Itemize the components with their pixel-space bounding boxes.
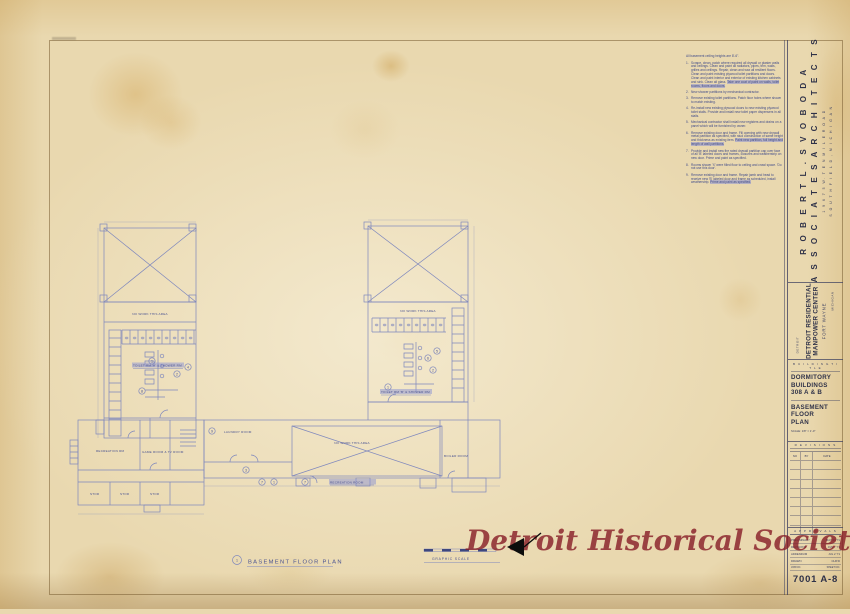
building-a (96, 224, 196, 438)
note-item: 7. Provide and install new fire rated dr… (686, 150, 783, 162)
building-title-line2: BUILDINGS (791, 382, 840, 390)
room-label-stor-1: STOR (90, 492, 100, 496)
scanned-drawing-sheet: { "colors": { "paper": "#e9d8af", "line_… (0, 0, 850, 609)
note-ref: 1 (387, 385, 389, 389)
note-ref: 3 (245, 468, 247, 472)
note-ref: 1 (151, 359, 153, 363)
job-number-label: JOB NO. (791, 566, 801, 569)
plan-title-ref: 1 (236, 559, 238, 563)
label-highlights (132, 363, 432, 485)
project-city: DETROIT (795, 337, 799, 354)
note-ref: 2 (432, 368, 434, 372)
room-label-stor-2: STOR (120, 492, 130, 496)
revisions-col-date: DATE (813, 452, 841, 460)
architect-name-line2: A S S O C I A T E S A R C H I T E C T S (809, 40, 820, 283)
pencil-note-smudge (52, 37, 76, 40)
note-reference-bubbles (139, 348, 440, 485)
room-label-recreation-left: RECREATION RM (96, 449, 125, 453)
project-rotated-text: DETROIT RESIDENTIAL MANPOWER CENTER FORT… (805, 283, 826, 360)
revisions-col-by: BY (801, 452, 813, 460)
room-label-recreation: RECREATION ROOM (330, 481, 364, 485)
note-ref: 6 (427, 356, 429, 360)
note-text: Rooms shown 'X' were filled floor to cei… (691, 164, 783, 172)
architect-address-line1: 1 9 6 7 5 W. T E N M I L E R O A D (822, 40, 827, 283)
note-item: 6. Remove existing door and frame. Fill … (686, 132, 783, 148)
plan-title: BASEMENT FLOOR PLAN (248, 560, 343, 566)
title-block-project: DETROIT RESIDENTIAL MANPOWER CENTER FORT… (788, 283, 843, 360)
note-ref: 7 (304, 480, 306, 484)
floor-plan-drawing: NO WORK THIS AREA NO WORK THIS AREA NO W… (58, 208, 524, 580)
drawing-title-line3: PLAN (791, 419, 840, 427)
revision-row (790, 489, 841, 498)
notes-intro: All basement ceiling heights are 8'-6". (686, 55, 783, 59)
title-block-architect: R O B E R T L . S V O B O D A A S S O C … (788, 40, 843, 283)
note-ref: 2 (176, 372, 178, 376)
note-ref: 1 (273, 480, 275, 484)
room-label-laundry: LAUNDRY ROOM (224, 430, 252, 434)
room-label-no-work-c: NO WORK THIS AREA (334, 441, 370, 445)
note-item: 4. Re-install new existing plywood doors… (686, 107, 783, 119)
project-state: MICHIGAN (831, 292, 835, 311)
job-sheet-row: JOB NO. SHEET NO. (790, 565, 841, 571)
note-item: 3. Remove existing toilet partitions. Pa… (686, 97, 783, 105)
revision-row (790, 470, 841, 479)
sheet-section-header: B U I L D I N G T I T L E (791, 362, 840, 372)
project-line2: MANPOWER CENTER (812, 283, 819, 360)
revision-row (790, 480, 841, 489)
note-item: 2. New shower partitions by mechanical c… (686, 91, 783, 95)
note-text: New shower partitions by mechanical cont… (691, 91, 783, 95)
note-text: Remove existing toilet partitions. Patch… (691, 97, 783, 105)
room-label-toilet-a: TOILET RM 'A' & SHOWER RM (133, 364, 182, 368)
sheet-title-divider (791, 400, 840, 401)
architect-rotated-text: R O B E R T L . S V O B O D A A S S O C … (798, 40, 834, 283)
project-line3: FORT WAYNE (821, 283, 826, 360)
note-item: 5. Mechanical contractor shall install n… (686, 121, 783, 129)
title-block: R O B E R T L . S V O B O D A A S S O C … (787, 40, 843, 595)
note-ref: 5 (436, 349, 438, 353)
revisions-col-no: NO (790, 452, 801, 460)
building-title-line3: 308 A & B (791, 389, 840, 397)
note-item: 8. Rooms shown 'X' were filled floor to … (686, 164, 783, 172)
title-block-sheet-title: B U I L D I N G T I T L E DORMITORY BUIL… (788, 360, 843, 442)
note-text: Provide and install new fire rated drywa… (691, 150, 783, 162)
room-label-no-work-a: NO WORK THIS AREA (132, 312, 168, 316)
revision-row (790, 461, 841, 470)
architect-address-line2: S O U T H F I E L D , M I C H I G A N (829, 40, 834, 283)
graphic-scale-label: GRAPHIC SCALE (432, 557, 470, 561)
room-label-no-work-b: NO WORK THIS AREA (400, 309, 436, 313)
title-block-revisions: R E V I S I O N S NO BY DATE (788, 442, 843, 528)
note-text: Mechanical contractor shall install new … (691, 121, 783, 129)
note-item: 9. Remove existing door and frame. Repai… (686, 174, 783, 186)
project-line1: DETROIT RESIDENTIAL (805, 283, 812, 360)
room-label-boiler: BOILER ROOM (444, 454, 468, 458)
note-ref: 8 (141, 389, 143, 393)
central-wing (70, 420, 500, 512)
general-notes: All basement ceiling heights are 8'-6". … (686, 55, 783, 188)
sheet-number: 7001 A-8 (790, 574, 841, 585)
cursor-icon (504, 530, 544, 562)
building-title-line1: DORMITORY (791, 374, 840, 382)
revision-row (790, 507, 841, 516)
note-text: Scrape, clean, patch where required all … (691, 62, 783, 89)
note-ref: 4 (187, 365, 189, 369)
approval-date: CHK'D (832, 559, 840, 563)
drawing-title-line2: FLOOR (791, 411, 840, 419)
note-text: Remove existing door and frame. Fill ope… (691, 132, 783, 148)
revisions-header-row: NO BY DATE (790, 452, 841, 461)
drawing-scale-note: SCALE: 1/8" = 1'-0" (791, 429, 840, 433)
room-label-game: GAME ROOM & TV ROOM (142, 450, 184, 454)
note-text: Remove existing door and frame. Repair j… (691, 174, 783, 186)
architect-name-line1: R O B E R T L . S V O B O D A (798, 40, 809, 283)
room-label-toilet-b: TOILET RM 'B' & SHOWER RM (381, 390, 430, 394)
revisions-section-header: R E V I S I O N S (790, 443, 841, 449)
revisions-table: NO BY DATE (790, 451, 841, 535)
sheet-number-label: SHEET NO. (827, 566, 840, 569)
room-label-stor-3: STOR (150, 492, 160, 496)
drawing-title-line1: BASEMENT (791, 404, 840, 412)
note-text: Re-install new existing plywood doors to… (691, 107, 783, 119)
note-ref: 7 (261, 480, 263, 484)
note-ref: 9 (211, 429, 213, 433)
revision-row (790, 498, 841, 507)
approval-label: DRAWN (791, 559, 801, 563)
approval-row: DRAWN CHK'D (790, 558, 841, 565)
note-item: 1. Scrape, clean, patch where required a… (686, 62, 783, 89)
